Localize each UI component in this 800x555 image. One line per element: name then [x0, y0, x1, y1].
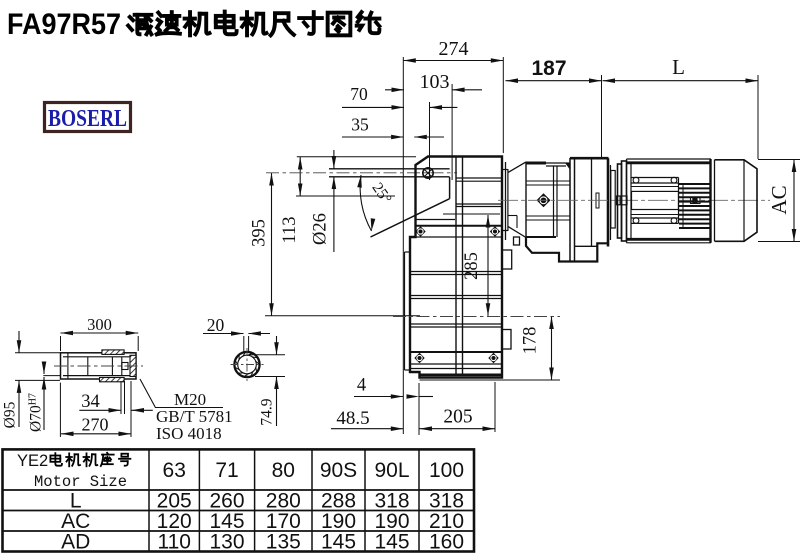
svg-text:160: 160: [429, 530, 464, 553]
svg-text:Motor Size: Motor Size: [34, 473, 127, 491]
svg-text:100: 100: [429, 459, 464, 482]
svg-text:90L: 90L: [374, 459, 409, 482]
svg-text:205: 205: [443, 407, 472, 428]
svg-text:270: 270: [82, 415, 109, 435]
svg-text:274: 274: [439, 38, 469, 60]
svg-text:48.5: 48.5: [336, 408, 369, 429]
svg-text:74.9: 74.9: [259, 398, 276, 425]
svg-text:145: 145: [321, 530, 356, 553]
svg-text:4: 4: [357, 376, 366, 396]
svg-text:Ø26: Ø26: [311, 213, 331, 245]
svg-text:110: 110: [157, 530, 190, 553]
svg-text:145: 145: [374, 530, 409, 553]
svg-text:130: 130: [209, 530, 244, 553]
svg-text:300: 300: [87, 315, 112, 334]
svg-text:35: 35: [351, 115, 369, 135]
svg-text:FA97R57: FA97R57: [7, 8, 121, 41]
svg-text:90S: 90S: [320, 459, 357, 482]
svg-text:BOSERL: BOSERL: [48, 105, 127, 132]
svg-text:80: 80: [272, 459, 295, 482]
svg-text:285: 285: [462, 252, 482, 280]
svg-text:70: 70: [350, 84, 368, 104]
svg-text:103: 103: [420, 71, 450, 93]
svg-text:178: 178: [521, 327, 541, 355]
svg-text:Ø95: Ø95: [2, 401, 19, 428]
svg-text:AC: AC: [767, 185, 791, 214]
svg-text:187: 187: [531, 57, 566, 80]
svg-text:63: 63: [163, 459, 186, 482]
svg-text:135: 135: [266, 530, 301, 553]
svg-text:34: 34: [81, 392, 100, 412]
svg-text:20: 20: [207, 315, 225, 335]
svg-text:71: 71: [215, 459, 238, 482]
svg-text:ISO 4018: ISO 4018: [156, 424, 222, 443]
svg-text:YE2: YE2: [17, 452, 48, 470]
svg-text:395: 395: [250, 219, 270, 247]
svg-text:L: L: [672, 55, 685, 79]
svg-text:AD: AD: [61, 530, 90, 553]
svg-text:113: 113: [280, 216, 300, 243]
